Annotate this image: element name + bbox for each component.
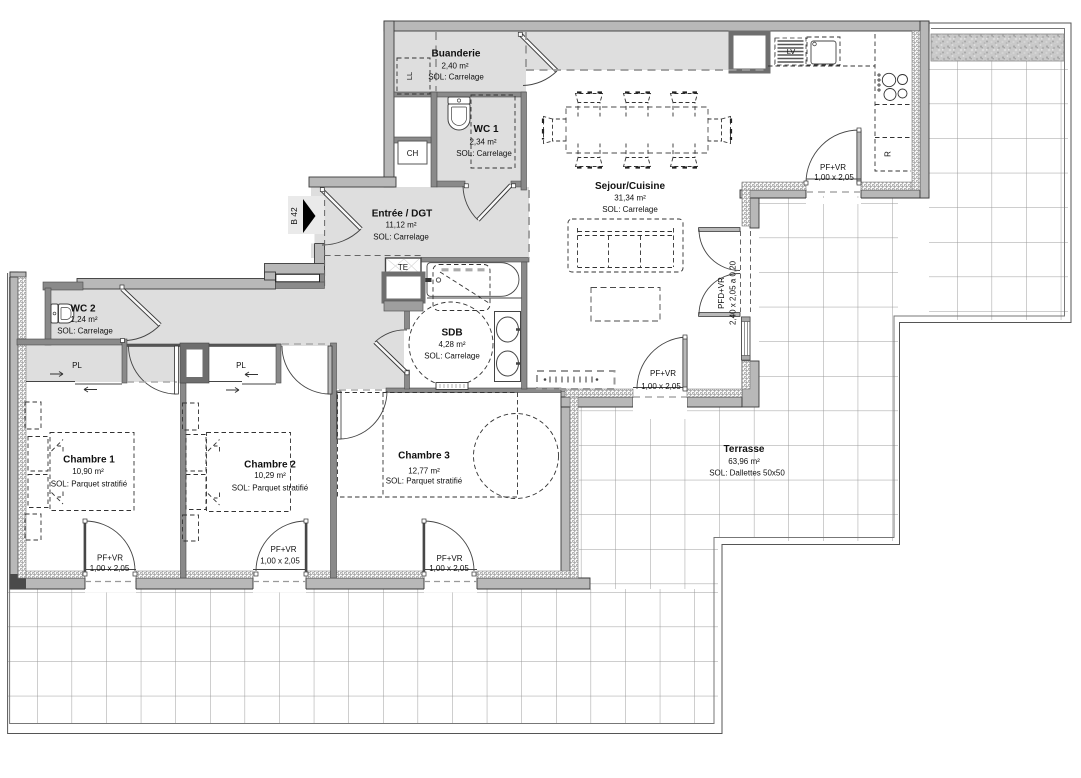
svg-text:Chambre 1: Chambre 1 bbox=[63, 455, 115, 466]
svg-text:4,28 m²: 4,28 m² bbox=[438, 340, 465, 349]
svg-text:63,96 m²: 63,96 m² bbox=[728, 457, 760, 466]
svg-text:SOL: Parquet stratifié: SOL: Parquet stratifié bbox=[232, 484, 309, 493]
svg-text:TE: TE bbox=[398, 263, 408, 272]
svg-text:Buanderie: Buanderie bbox=[432, 49, 481, 60]
svg-text:SOL: Carrelage: SOL: Carrelage bbox=[428, 73, 484, 82]
svg-text:Sejour/Cuisine: Sejour/Cuisine bbox=[595, 181, 665, 192]
svg-text:11,12 m²: 11,12 m² bbox=[386, 221, 417, 230]
svg-text:PF+VR: PF+VR bbox=[820, 163, 846, 172]
svg-text:SDB: SDB bbox=[441, 328, 462, 339]
svg-text:LV: LV bbox=[787, 47, 796, 56]
svg-text:B 42: B 42 bbox=[289, 207, 299, 225]
svg-text:WC 1: WC 1 bbox=[474, 124, 499, 135]
svg-text:Terrasse: Terrasse bbox=[724, 444, 765, 455]
svg-text:PF+VR: PF+VR bbox=[436, 554, 462, 563]
svg-text:PF+VR: PF+VR bbox=[270, 545, 296, 554]
svg-text:1,00 x 2,05: 1,00 x 2,05 bbox=[641, 382, 681, 391]
svg-text:SOL: Carrelage: SOL: Carrelage bbox=[424, 352, 480, 361]
svg-text:SOL: Dallettes 50x50: SOL: Dallettes 50x50 bbox=[709, 469, 785, 478]
svg-text:SOL: Carrelage: SOL: Carrelage bbox=[456, 149, 512, 158]
svg-text:10,29 m²: 10,29 m² bbox=[254, 471, 286, 480]
svg-text:Chambre 3: Chambre 3 bbox=[398, 451, 450, 462]
svg-text:Entrée / DGT: Entrée / DGT bbox=[372, 209, 433, 220]
svg-text:PL: PL bbox=[72, 361, 82, 370]
svg-text:LL: LL bbox=[405, 72, 414, 80]
svg-text:10,90 m²: 10,90 m² bbox=[72, 467, 104, 476]
svg-text:R: R bbox=[884, 151, 893, 157]
svg-text:SOL: Parquet stratifié: SOL: Parquet stratifié bbox=[386, 477, 463, 486]
svg-text:2,40 m²: 2,40 m² bbox=[441, 62, 468, 71]
svg-text:SOL: Carrelage: SOL: Carrelage bbox=[373, 233, 429, 242]
svg-text:SOL: Carrelage: SOL: Carrelage bbox=[602, 205, 658, 214]
svg-text:PF+VR: PF+VR bbox=[97, 554, 123, 563]
svg-text:SOL: Parquet stratifié: SOL: Parquet stratifié bbox=[51, 480, 128, 489]
svg-text:2,34 m²: 2,34 m² bbox=[469, 138, 496, 147]
svg-text:CH: CH bbox=[407, 149, 419, 158]
svg-text:SOL: Carrelage: SOL: Carrelage bbox=[57, 327, 113, 336]
svg-text:WC 2: WC 2 bbox=[71, 304, 96, 315]
svg-text:PL: PL bbox=[236, 361, 246, 370]
svg-text:PF+VR: PF+VR bbox=[650, 369, 676, 378]
svg-text:31,34 m²: 31,34 m² bbox=[614, 194, 646, 203]
svg-text:1,00 x 2,05: 1,00 x 2,05 bbox=[814, 173, 854, 182]
svg-text:Chambre 2: Chambre 2 bbox=[244, 460, 296, 471]
svg-text:1,00 x 2,05: 1,00 x 2,05 bbox=[429, 564, 469, 573]
svg-text:1,24 m²: 1,24 m² bbox=[70, 315, 97, 324]
svg-text:2,40 x 2,05 a 0,20: 2,40 x 2,05 a 0,20 bbox=[729, 260, 738, 325]
svg-text:12,77 m²: 12,77 m² bbox=[408, 467, 440, 476]
svg-text:PFD+VR: PFD+VR bbox=[717, 277, 726, 309]
svg-text:1,00 x 2,05: 1,00 x 2,05 bbox=[90, 564, 130, 573]
svg-text:1,00 x 2,05: 1,00 x 2,05 bbox=[260, 557, 300, 566]
